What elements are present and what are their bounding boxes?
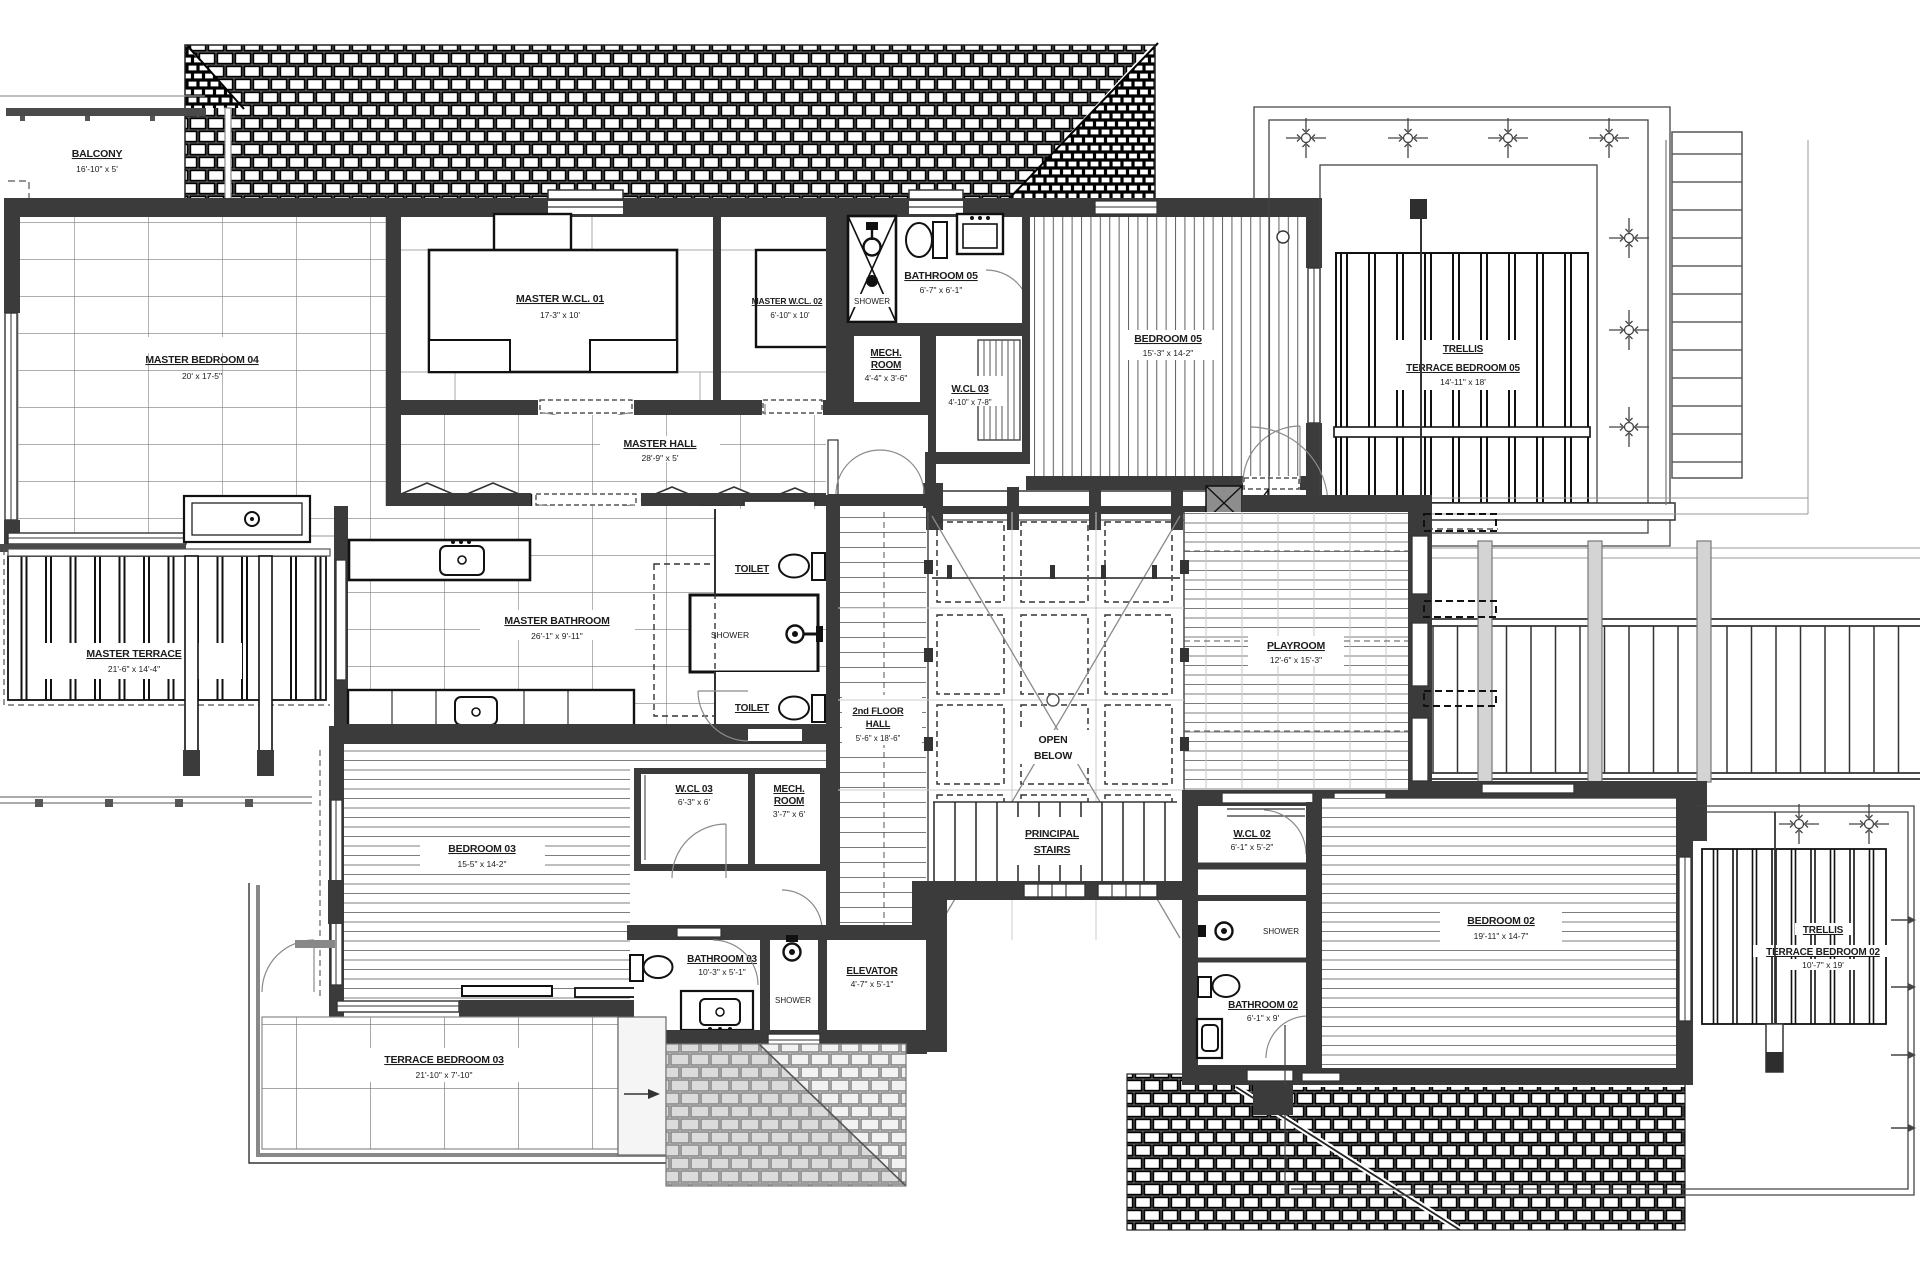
svg-text:PLAYROOM: PLAYROOM — [1267, 640, 1326, 652]
svg-text:BEDROOM 05: BEDROOM 05 — [1134, 333, 1202, 345]
svg-text:6'-1" x 5'-2": 6'-1" x 5'-2" — [1231, 842, 1274, 852]
svg-text:TOILET: TOILET — [735, 703, 769, 714]
svg-text:BEDROOM 03: BEDROOM 03 — [448, 843, 516, 855]
svg-text:STAIRS: STAIRS — [1034, 844, 1071, 856]
svg-text:BALCONY: BALCONY — [72, 148, 123, 160]
svg-text:SHOWER: SHOWER — [854, 297, 890, 306]
svg-text:SHOWER: SHOWER — [775, 996, 811, 1005]
svg-text:SHOWER: SHOWER — [711, 630, 749, 640]
svg-text:ELEVATOR: ELEVATOR — [846, 966, 898, 977]
svg-text:MECH.: MECH. — [773, 784, 805, 795]
svg-text:TERRACE BEDROOM 05: TERRACE BEDROOM 05 — [1406, 363, 1520, 374]
svg-text:6'-1" x 9': 6'-1" x 9' — [1247, 1013, 1280, 1023]
svg-text:4'-10" x 7-8": 4'-10" x 7-8" — [948, 398, 991, 407]
svg-text:4'-7" x 5'-1": 4'-7" x 5'-1" — [851, 979, 894, 989]
svg-text:5'-6" x 18'-6": 5'-6" x 18'-6" — [856, 734, 901, 743]
svg-text:6'-7" x 6'-1": 6'-7" x 6'-1" — [920, 285, 963, 295]
svg-text:28'-9" x 5': 28'-9" x 5' — [642, 453, 679, 463]
svg-text:BATHROOM 05: BATHROOM 05 — [904, 270, 978, 282]
svg-text:TOILET: TOILET — [735, 564, 769, 575]
svg-text:21'-10" x 7'-10": 21'-10" x 7'-10" — [415, 1070, 472, 1080]
svg-text:W.CL 03: W.CL 03 — [675, 784, 713, 795]
svg-text:6'-3" x 6': 6'-3" x 6' — [678, 797, 711, 807]
svg-text:MASTER HALL: MASTER HALL — [623, 438, 697, 450]
svg-text:MASTER BATHROOM: MASTER BATHROOM — [504, 615, 610, 627]
svg-text:3'-7" x 6': 3'-7" x 6' — [773, 809, 806, 819]
svg-text:HALL: HALL — [866, 719, 891, 730]
svg-text:10'-3" x 5'-1": 10'-3" x 5'-1" — [698, 967, 746, 977]
svg-text:SHOWER: SHOWER — [1263, 927, 1299, 936]
svg-text:21'-6" x 14'-4": 21'-6" x 14'-4" — [108, 664, 160, 674]
svg-text:OPEN: OPEN — [1039, 734, 1068, 746]
svg-text:6'-10" x 10': 6'-10" x 10' — [770, 311, 810, 320]
svg-text:TERRACE BEDROOM 03: TERRACE BEDROOM 03 — [384, 1054, 504, 1066]
svg-text:15-5" x 14-2": 15-5" x 14-2" — [457, 859, 506, 869]
svg-text:16'-10" x 5': 16'-10" x 5' — [76, 164, 118, 174]
svg-text:26'-1" x 9'-11": 26'-1" x 9'-11" — [531, 631, 583, 641]
svg-text:BELOW: BELOW — [1034, 750, 1072, 762]
svg-text:PRINCIPAL: PRINCIPAL — [1025, 828, 1080, 840]
svg-text:14'-11" x 18': 14'-11" x 18' — [1440, 377, 1486, 387]
svg-text:19'-11" x 14-7": 19'-11" x 14-7" — [1474, 931, 1529, 941]
svg-text:TERRACE BEDROOM 02: TERRACE BEDROOM 02 — [1766, 947, 1880, 958]
svg-text:4'-4" x 3'-6": 4'-4" x 3'-6" — [865, 373, 908, 383]
svg-text:MASTER BEDROOM 04: MASTER BEDROOM 04 — [145, 354, 259, 366]
svg-text:2nd FLOOR: 2nd FLOOR — [853, 706, 904, 717]
svg-text:W.CL 02: W.CL 02 — [1233, 829, 1271, 840]
svg-text:MASTER W.CL. 01: MASTER W.CL. 01 — [516, 293, 604, 305]
svg-text:BATHROOM 02: BATHROOM 02 — [1228, 1000, 1298, 1011]
svg-text:W.CL 03: W.CL 03 — [951, 384, 989, 395]
svg-text:ROOM: ROOM — [871, 360, 901, 371]
svg-text:TRELLIS: TRELLIS — [1803, 925, 1844, 936]
svg-text:17-3" x 10': 17-3" x 10' — [540, 310, 580, 320]
svg-text:MASTER TERRACE: MASTER TERRACE — [86, 648, 181, 660]
svg-text:ROOM: ROOM — [774, 796, 804, 807]
svg-text:15'-3" x 14-2": 15'-3" x 14-2" — [1143, 348, 1194, 358]
svg-text:MECH.: MECH. — [870, 348, 902, 359]
svg-text:BEDROOM 02: BEDROOM 02 — [1467, 915, 1535, 927]
svg-text:12'-6" x 15'-3": 12'-6" x 15'-3" — [1270, 655, 1322, 665]
svg-text:TRELLIS: TRELLIS — [1443, 344, 1484, 355]
svg-text:10'-7" x 19': 10'-7" x 19' — [1802, 960, 1844, 970]
svg-text:MASTER W.CL. 02: MASTER W.CL. 02 — [752, 296, 823, 306]
svg-text:20' x 17-5": 20' x 17-5" — [182, 371, 222, 381]
